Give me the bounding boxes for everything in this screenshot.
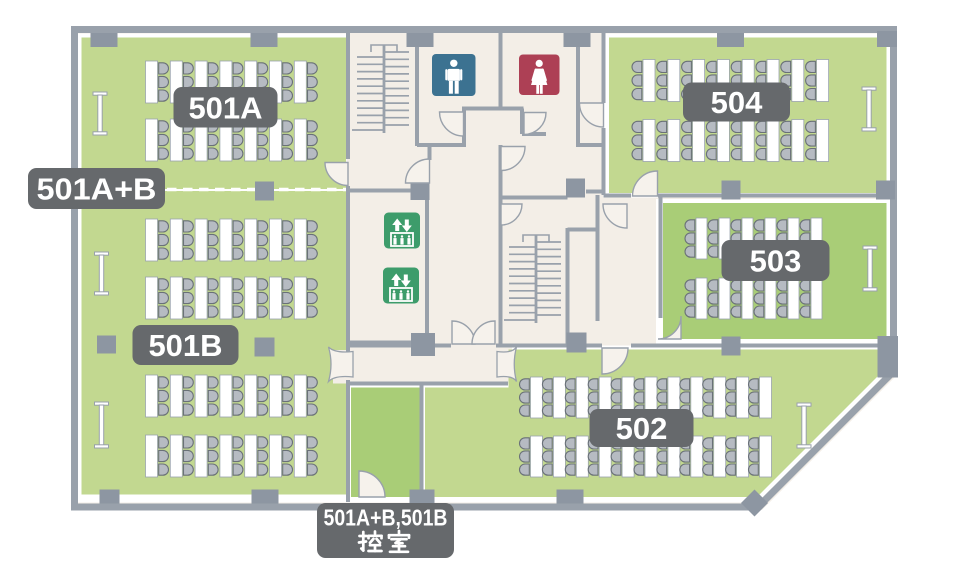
svg-text:501B: 501B: [148, 328, 222, 363]
svg-text:501A+B,501B: 501A+B,501B: [324, 505, 448, 531]
svg-text:503: 503: [750, 244, 802, 279]
svg-text:501A+B: 501A+B: [37, 172, 157, 207]
svg-text:502: 502: [616, 411, 668, 446]
svg-text:504: 504: [711, 85, 763, 120]
svg-text:501A: 501A: [188, 90, 262, 125]
